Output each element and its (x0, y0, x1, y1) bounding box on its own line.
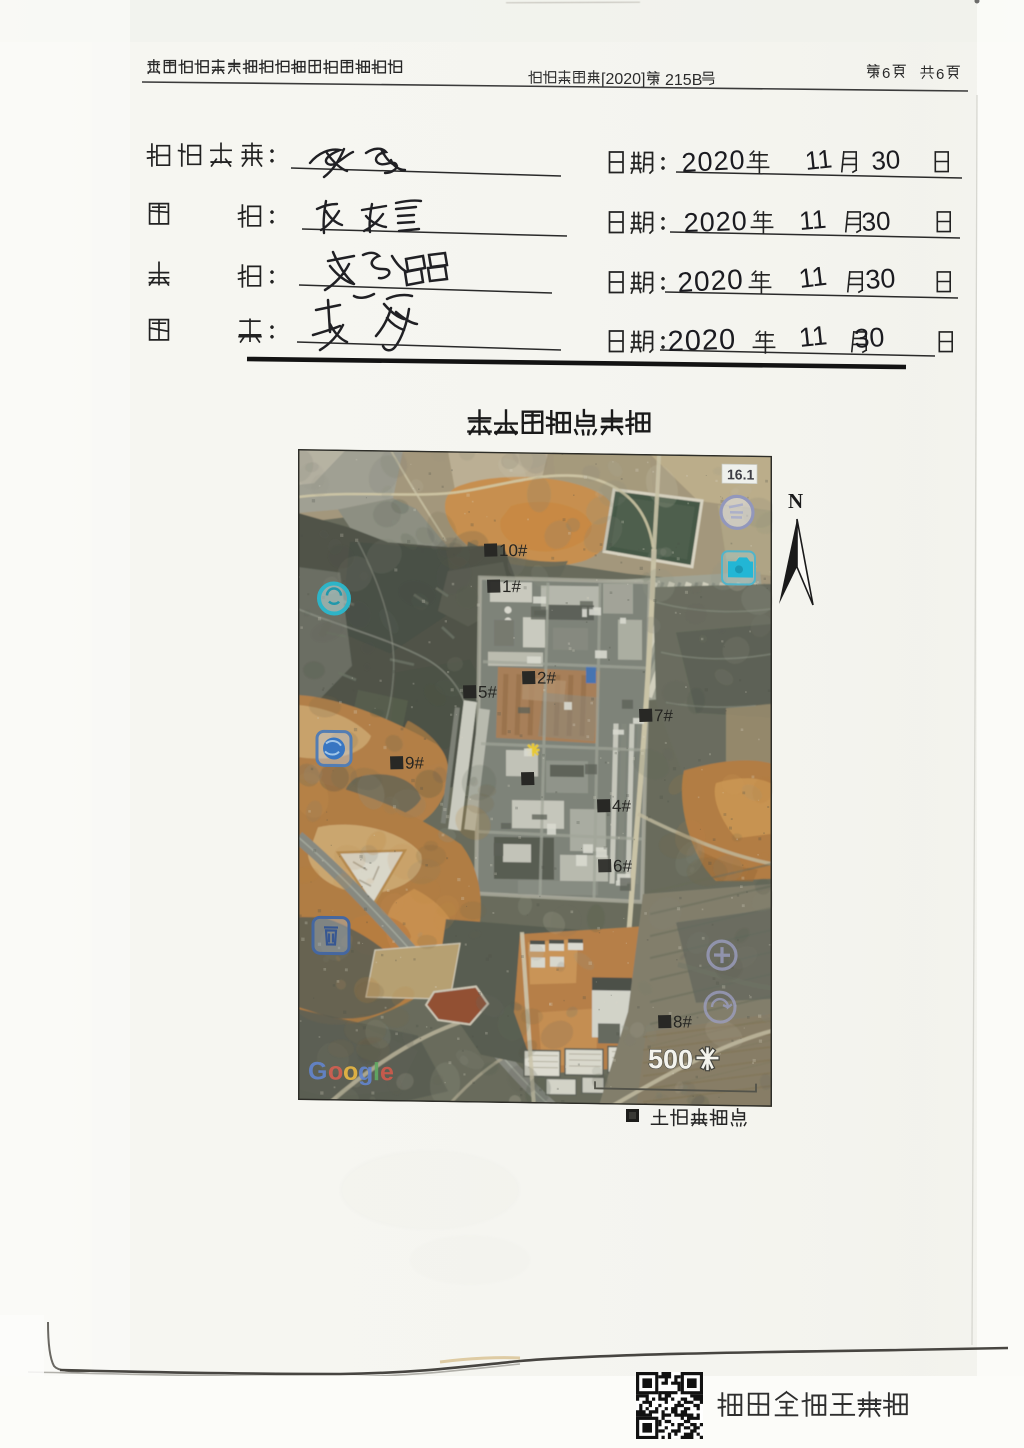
svg-text:11: 11 (797, 320, 828, 353)
svg-text:[2020]: [2020] (601, 71, 645, 88)
svg-text:2020: 2020 (681, 145, 747, 178)
svg-text:30: 30 (861, 206, 891, 237)
svg-text:11: 11 (803, 143, 833, 176)
svg-text:6: 6 (882, 65, 890, 82)
svg-text:11: 11 (797, 261, 828, 294)
svg-text:215B: 215B (665, 72, 702, 89)
svg-text:30: 30 (870, 144, 901, 176)
svg-text:N: N (788, 489, 803, 513)
svg-text:30: 30 (864, 263, 896, 295)
svg-text:6: 6 (936, 66, 944, 83)
svg-text:2020: 2020 (683, 206, 748, 238)
svg-text:11: 11 (798, 204, 828, 236)
svg-text:2020: 2020 (667, 324, 737, 358)
svg-text:2020: 2020 (677, 264, 745, 298)
svg-text:30: 30 (853, 322, 885, 354)
